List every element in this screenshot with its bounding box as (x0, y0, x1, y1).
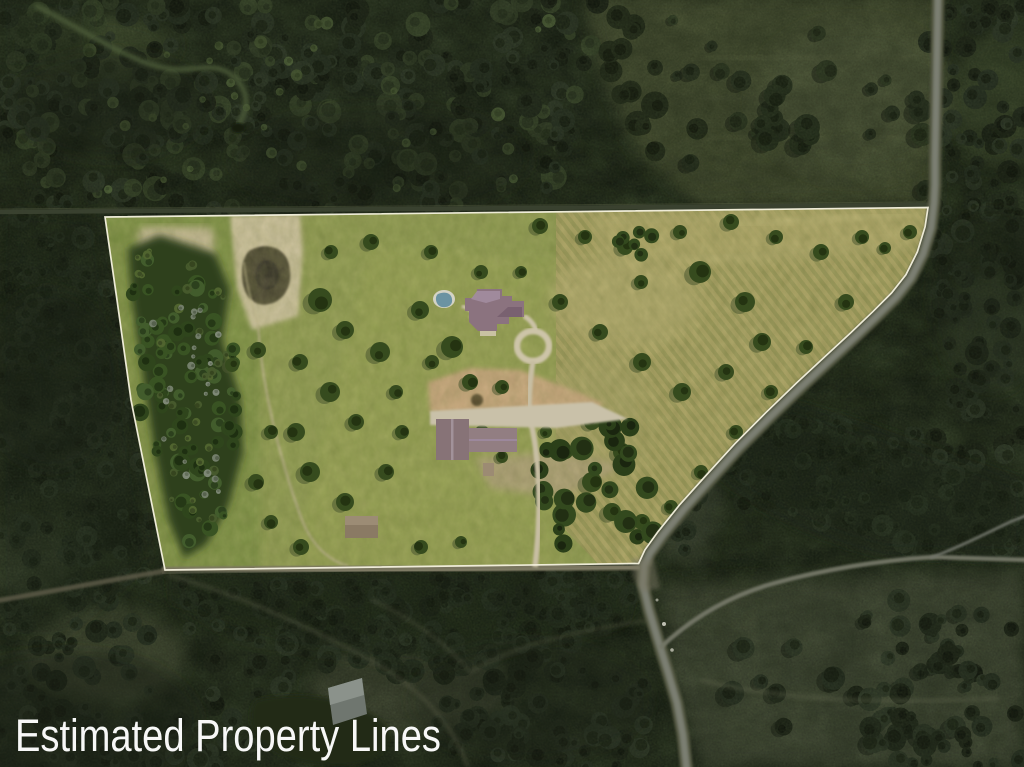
svg-text:Estimated Property Lines: Estimated Property Lines (15, 710, 441, 761)
